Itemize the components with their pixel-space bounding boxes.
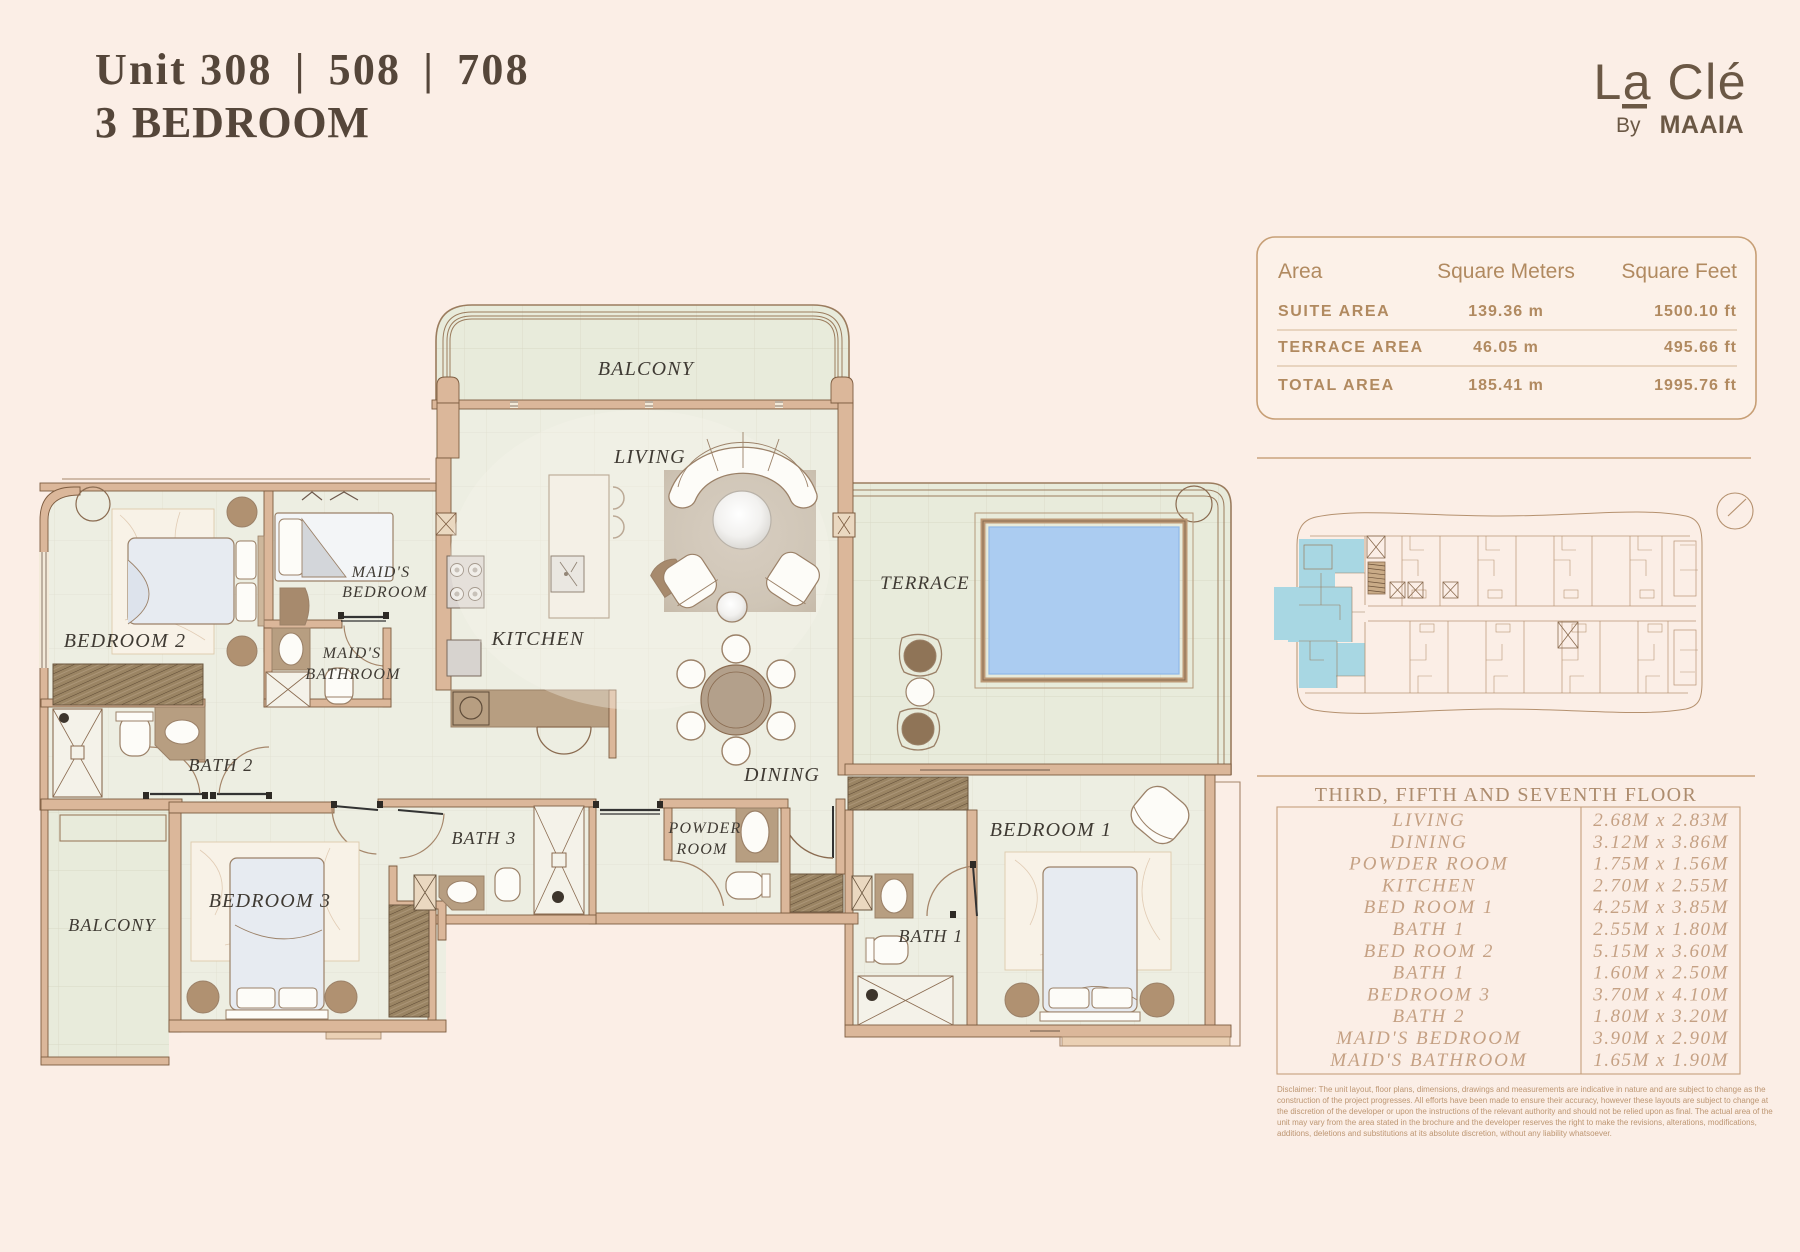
svg-text:BATH 1: BATH 1 bbox=[898, 926, 963, 946]
svg-text:DINING: DINING bbox=[1389, 832, 1467, 853]
svg-text:TERRACE AREA: TERRACE AREA bbox=[1278, 339, 1424, 356]
svg-text:BATH 2: BATH 2 bbox=[1392, 1006, 1465, 1027]
svg-text:1.80M x 3.20M: 1.80M x 3.20M bbox=[1593, 1006, 1729, 1027]
svg-text:the discretion of the develope: the discretion of the developer or upon … bbox=[1277, 1107, 1773, 1116]
svg-text:KITCHEN: KITCHEN bbox=[491, 628, 585, 650]
svg-text:5.15M x 3.60M: 5.15M x 3.60M bbox=[1593, 941, 1729, 962]
svg-text:1.65M x 1.90M: 1.65M x 1.90M bbox=[1593, 1050, 1729, 1071]
svg-text:1500.10 ft: 1500.10 ft bbox=[1654, 303, 1737, 320]
svg-text:MAID'S BATHROOM: MAID'S BATHROOM bbox=[1329, 1050, 1527, 1071]
svg-text:BATH 2: BATH 2 bbox=[188, 755, 253, 775]
svg-text:BATH 1: BATH 1 bbox=[1392, 919, 1465, 940]
svg-text:construction of the project pr: construction of the project progresses. … bbox=[1277, 1096, 1769, 1105]
svg-text:BALCONY: BALCONY bbox=[68, 915, 156, 935]
svg-text:TOTAL AREA: TOTAL AREA bbox=[1278, 377, 1395, 394]
svg-text:unit may vary from the area st: unit may vary from the area stated in th… bbox=[1277, 1118, 1757, 1127]
svg-text:BED ROOM 1: BED ROOM 1 bbox=[1364, 897, 1495, 918]
svg-text:BATHROOM: BATHROOM bbox=[305, 666, 401, 683]
svg-text:LIVING: LIVING bbox=[1391, 810, 1465, 831]
svg-text:1.75M x 1.56M: 1.75M x 1.56M bbox=[1593, 854, 1729, 875]
svg-text:4.25M x 3.85M: 4.25M x 3.85M bbox=[1593, 897, 1729, 918]
svg-text:46.05 m: 46.05 m bbox=[1473, 339, 1539, 356]
svg-text:THIRD, FIFTH AND SEVENTH FLOOR: THIRD, FIFTH AND SEVENTH FLOOR bbox=[1315, 784, 1698, 806]
svg-text:KITCHEN: KITCHEN bbox=[1381, 875, 1476, 896]
svg-text:POWDER ROOM: POWDER ROOM bbox=[1348, 854, 1509, 875]
svg-text:LIVING: LIVING bbox=[613, 446, 686, 468]
svg-text:MAID'S: MAID'S bbox=[351, 564, 411, 581]
svg-text:By: By bbox=[1616, 114, 1641, 137]
svg-text:POWDER: POWDER bbox=[668, 820, 742, 837]
svg-text:Area: Area bbox=[1278, 260, 1323, 283]
svg-text:BEDROOM: BEDROOM bbox=[342, 584, 428, 601]
svg-text:BATH 1: BATH 1 bbox=[1392, 963, 1465, 984]
svg-text:DINING: DINING bbox=[743, 764, 820, 786]
svg-text:2.68M x 2.83M: 2.68M x 2.83M bbox=[1593, 810, 1729, 831]
svg-text:MAID'S BEDROOM: MAID'S BEDROOM bbox=[1335, 1028, 1522, 1049]
svg-text:BED ROOM 2: BED ROOM 2 bbox=[1364, 941, 1495, 962]
svg-text:3.90M x 2.90M: 3.90M x 2.90M bbox=[1592, 1028, 1729, 1049]
svg-text:MAAIA: MAAIA bbox=[1660, 111, 1744, 139]
svg-text:139.36 m: 139.36 m bbox=[1468, 303, 1544, 320]
svg-text:BEDROOM 2: BEDROOM 2 bbox=[64, 630, 186, 652]
svg-text:3 BEDROOM: 3 BEDROOM bbox=[95, 98, 370, 147]
svg-text:1.60M x 2.50M: 1.60M x 2.50M bbox=[1593, 963, 1729, 984]
svg-text:TERRACE: TERRACE bbox=[880, 573, 970, 594]
svg-text:1995.76 ft: 1995.76 ft bbox=[1654, 377, 1737, 394]
svg-text:additions, deletions and subst: additions, deletions and substitutions a… bbox=[1277, 1129, 1612, 1138]
svg-text:BEDROOM 1: BEDROOM 1 bbox=[990, 819, 1112, 841]
svg-text:3.12M x 3.86M: 3.12M x 3.86M bbox=[1592, 832, 1729, 853]
svg-text:2.70M x 2.55M: 2.70M x 2.55M bbox=[1593, 875, 1729, 896]
svg-text:BALCONY: BALCONY bbox=[598, 358, 695, 380]
svg-text:Unit 308 | 508 | 708: Unit 308 | 508 | 708 bbox=[95, 45, 530, 94]
svg-text:SUITE AREA: SUITE AREA bbox=[1278, 303, 1390, 320]
svg-text:Disclaimer: The unit layout, f: Disclaimer: The unit layout, floor plans… bbox=[1277, 1085, 1766, 1094]
svg-text:MAID'S: MAID'S bbox=[322, 645, 382, 662]
svg-text:BEDROOM 3: BEDROOM 3 bbox=[209, 890, 331, 912]
svg-text:3.70M x 4.10M: 3.70M x 4.10M bbox=[1592, 984, 1729, 1005]
svg-text:Square Feet: Square Feet bbox=[1621, 260, 1737, 283]
svg-text:495.66 ft: 495.66 ft bbox=[1664, 339, 1737, 356]
svg-text:2.55M x 1.80M: 2.55M x 1.80M bbox=[1593, 919, 1729, 940]
svg-text:Square Meters: Square Meters bbox=[1437, 260, 1575, 283]
svg-text:BATH 3: BATH 3 bbox=[451, 828, 516, 848]
svg-text:BEDROOM 3: BEDROOM 3 bbox=[1367, 984, 1491, 1005]
svg-text:185.41 m: 185.41 m bbox=[1468, 377, 1544, 394]
svg-text:ROOM: ROOM bbox=[675, 841, 727, 858]
svg-text:La Clé: La Clé bbox=[1593, 54, 1747, 110]
